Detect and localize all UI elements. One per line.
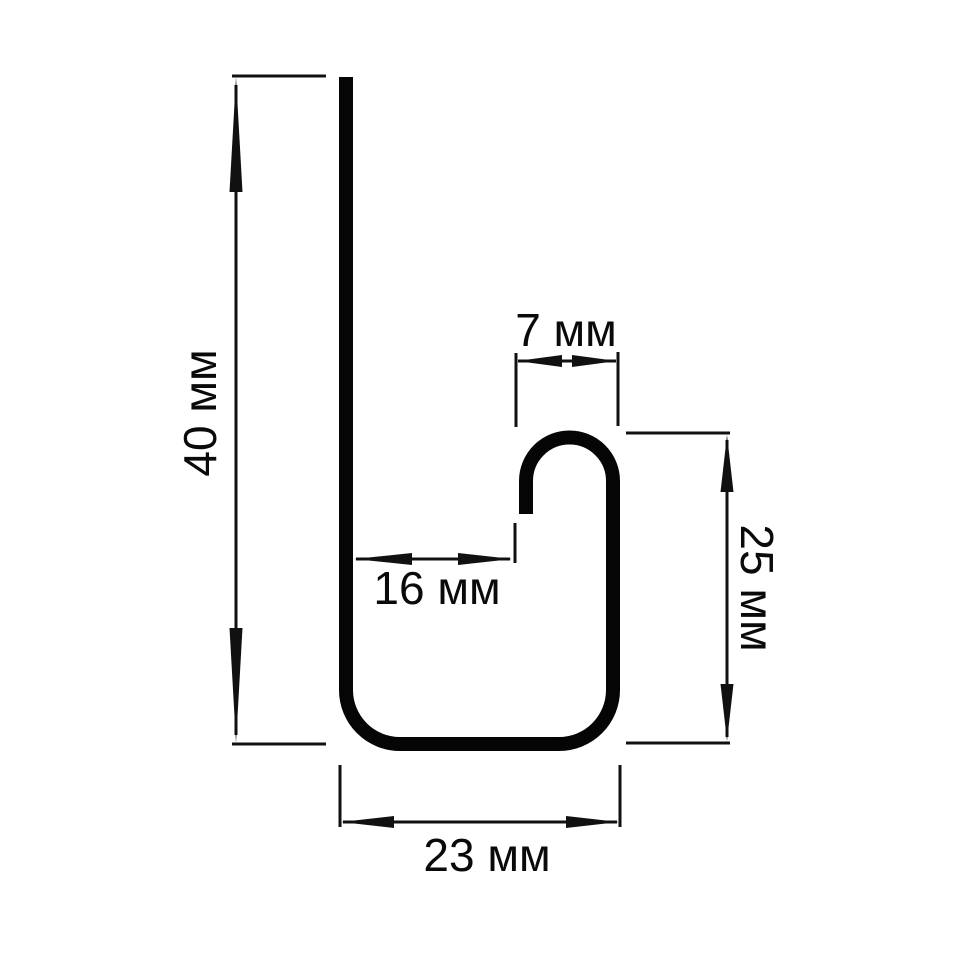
- dimension-label-25mm: 25 мм: [734, 524, 780, 651]
- arrow-up-icon: [721, 435, 734, 492]
- arrow-right-icon: [566, 816, 619, 828]
- arrow-right-icon: [572, 355, 617, 367]
- dimension-7mm-lines: [516, 352, 618, 427]
- dimension-40mm-lines: [230, 76, 327, 744]
- arrow-left-icon: [341, 816, 394, 828]
- dimension-drawing: 40 мм 7 мм 16 мм 25 мм 23 мм: [0, 0, 960, 960]
- arrow-down-icon: [230, 628, 243, 743]
- arrow-down-icon: [721, 684, 734, 741]
- dimension-drawing-svg: [0, 0, 960, 960]
- dimension-label-16mm: 16 мм: [373, 565, 500, 611]
- dimension-23mm-lines: [340, 765, 620, 828]
- dimension-16mm-lines: [354, 523, 515, 565]
- dimension-label-40mm: 40 мм: [177, 349, 223, 476]
- dimension-label-23mm: 23 мм: [423, 832, 550, 878]
- j-profile-outline: [346, 77, 613, 744]
- dimension-label-7mm: 7 мм: [515, 307, 617, 353]
- arrow-up-icon: [230, 77, 243, 192]
- arrow-left-icon: [517, 355, 562, 367]
- dimension-25mm-lines: [626, 433, 734, 743]
